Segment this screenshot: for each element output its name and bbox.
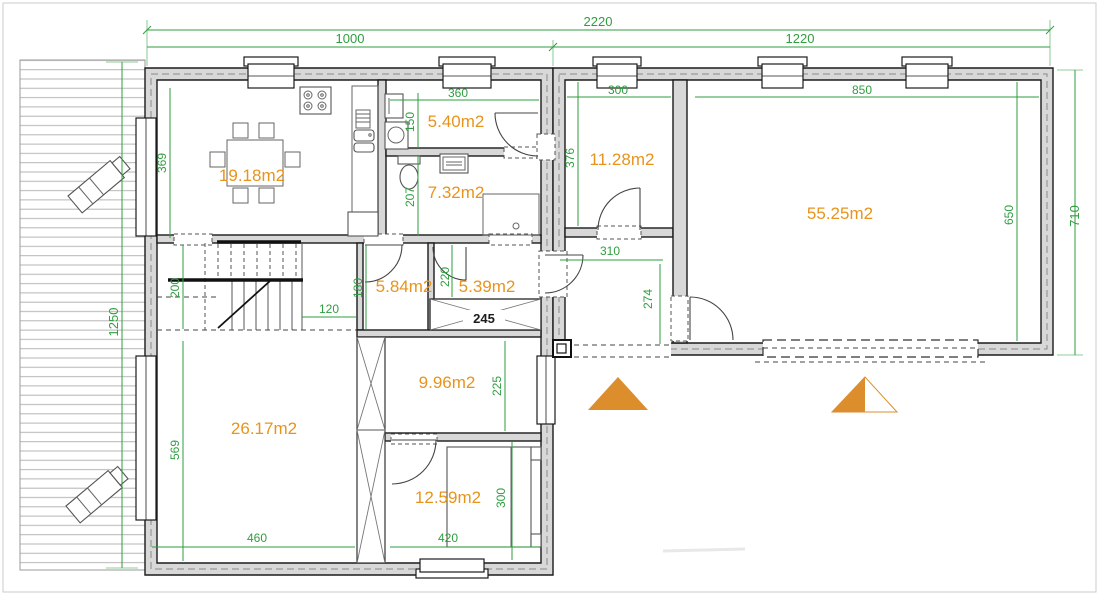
dim-terrace-length: 1250 <box>106 308 121 337</box>
right-wing-walls <box>553 68 1053 355</box>
area-utility-room: 5.40m2 <box>428 112 485 131</box>
door-upper-room <box>598 188 640 230</box>
dim-living-depth: 369 <box>155 153 169 173</box>
entrance-markers <box>588 377 897 551</box>
terrace <box>20 60 145 570</box>
floor-plan-document: 2220 1000 1220 710 1250 369 360 150 207 … <box>0 0 1099 600</box>
dining-table-set <box>210 123 300 203</box>
entrance-triangle-half <box>832 377 897 412</box>
area-upper-room: 11.28m2 <box>590 150 655 169</box>
insulation-line <box>559 74 1047 349</box>
dim-lower-room-width: 460 <box>247 531 267 545</box>
area-bathroom: 7.32m2 <box>428 183 485 202</box>
kitchen-counter-sink <box>348 86 378 236</box>
window <box>244 57 298 88</box>
dim-upper-room-depth: 376 <box>563 148 577 168</box>
door-bedroom <box>392 440 436 484</box>
dim-closet-depth: 220 <box>438 267 452 287</box>
bedroom-door-opening <box>391 434 437 444</box>
wall-below-closets <box>357 330 541 337</box>
window <box>439 57 495 88</box>
area-garage: 55.25m2 <box>807 204 873 223</box>
garage-door <box>755 340 985 362</box>
area-bedroom: 12.59m2 <box>415 488 481 507</box>
dim-corridor-depth: 200 <box>168 278 182 298</box>
toilet <box>398 156 420 189</box>
dim-stair-clearance: 120 <box>319 302 339 316</box>
dim-garage-width: 850 <box>852 83 872 97</box>
dim-bedroom-width: 420 <box>438 531 458 545</box>
area-wc: 5.84m2 <box>376 277 433 296</box>
window <box>416 559 488 578</box>
dim-bathroom-depth: 207 <box>403 187 417 207</box>
area-lower-room: 26.17m2 <box>231 419 297 438</box>
exterior-walls <box>145 68 1053 575</box>
dim-wc-depth: 180 <box>351 278 365 298</box>
dim-middle-room-depth: 225 <box>490 376 504 396</box>
dim-bedroom-depth: 300 <box>494 488 508 508</box>
shower <box>483 194 539 235</box>
window <box>537 356 555 424</box>
dim-closet-width: 245 <box>473 311 495 326</box>
area-closet-room: 5.39m2 <box>459 277 516 296</box>
window <box>902 57 952 88</box>
stove <box>300 87 331 114</box>
tall-cupboard <box>357 337 385 563</box>
window <box>758 57 807 88</box>
boiler-box <box>440 154 468 173</box>
entrance-triangle-solid <box>588 377 648 410</box>
terrace-door-window <box>136 118 156 236</box>
faint-artifact <box>663 549 745 551</box>
terrace-door-window <box>136 356 156 520</box>
dim-total-width: 2220 <box>584 14 613 29</box>
dimension-lines <box>106 20 1083 568</box>
closet-room-door-opening <box>489 234 532 245</box>
area-living-dining: 19.18m2 <box>219 166 285 185</box>
entry-pillar <box>553 340 571 357</box>
door-front <box>690 297 733 340</box>
entrance-porch <box>553 340 671 357</box>
dim-utility-depth: 150 <box>403 112 417 132</box>
hall-west-door-opening <box>539 251 567 297</box>
dim-garage-depth: 650 <box>1002 205 1016 225</box>
dim-right-wing-width: 1220 <box>786 31 815 46</box>
dim-hall-depth: 274 <box>641 289 655 309</box>
dim-right-wing-depth: 710 <box>1067 205 1082 227</box>
dim-upper-room-width: 300 <box>608 83 628 97</box>
dim-hall-width: 310 <box>600 244 620 258</box>
dim-lower-room-depth: 569 <box>168 440 182 460</box>
upper-room-door-opening <box>597 226 641 239</box>
dim-utility-width: 360 <box>448 86 468 100</box>
corridor-opening <box>174 234 212 245</box>
floor-plan-canvas: 2220 1000 1220 710 1250 369 360 150 207 … <box>0 0 1099 600</box>
front-door-opening <box>671 296 688 341</box>
area-middle-room: 9.96m2 <box>419 373 476 392</box>
sidewall-opening <box>537 134 555 160</box>
dim-left-wing-width: 1000 <box>336 31 365 46</box>
